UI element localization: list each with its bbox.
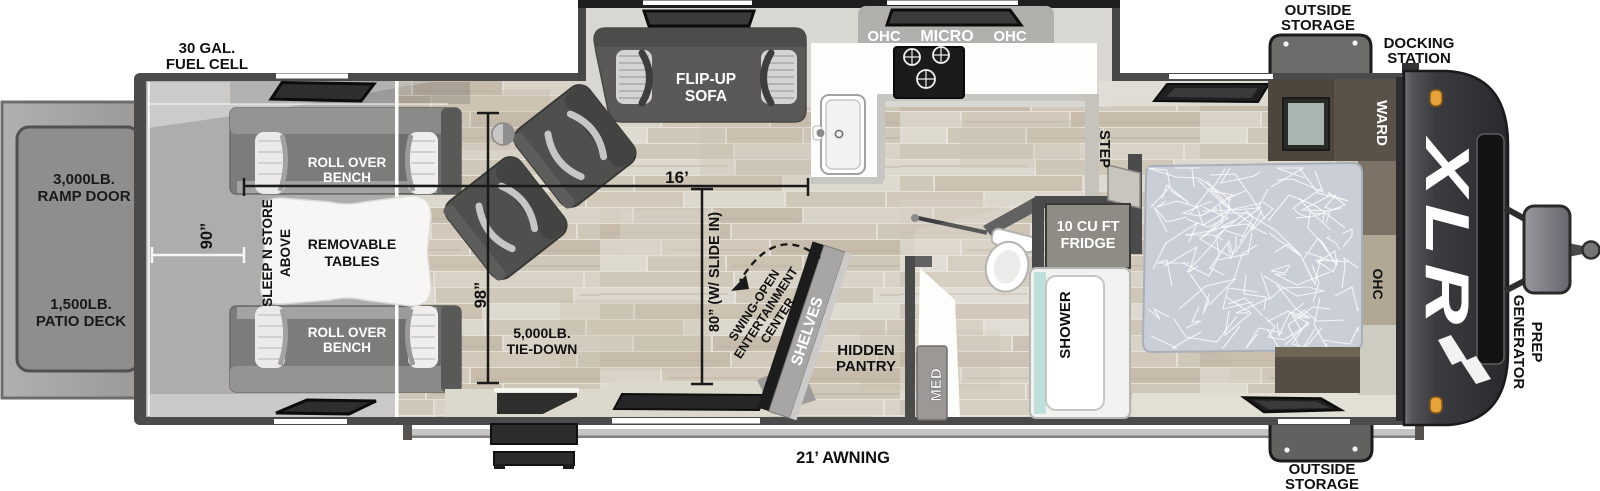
svg-text:STATION: STATION [1387,50,1451,67]
svg-text:PATIO DECK: PATIO DECK [36,313,126,330]
svg-text:RAMP DOOR: RAMP DOOR [37,188,130,205]
svg-text:WARD: WARD [1373,100,1390,146]
svg-text:FUEL CELL: FUEL CELL [166,56,248,73]
svg-text:GENERATOR: GENERATOR [1510,295,1527,390]
svg-text:5,000LB.: 5,000LB. [513,325,571,341]
svg-text:HIDDEN: HIDDEN [837,342,895,359]
svg-text:90”: 90” [198,223,216,250]
svg-text:OHC: OHC [867,28,901,45]
svg-text:SOFA: SOFA [685,88,727,105]
svg-text:BENCH: BENCH [323,170,371,185]
svg-text:BENCH: BENCH [323,340,371,355]
svg-text:FLIP-UP: FLIP-UP [676,71,736,88]
svg-text:TIE-DOWN: TIE-DOWN [507,341,578,357]
svg-text:STORAGE: STORAGE [1281,17,1355,34]
svg-text:98”: 98” [472,282,490,309]
svg-text:3,000LB.: 3,000LB. [53,171,115,188]
svg-text:PANTRY: PANTRY [836,358,896,375]
svg-text:REMOVABLE: REMOVABLE [308,236,396,252]
svg-text:FRIDGE: FRIDGE [1061,236,1116,252]
svg-text:MICRO: MICRO [920,28,973,45]
svg-text:XLR: XLR [1413,135,1483,333]
svg-text:SHOWER: SHOWER [1057,291,1074,359]
svg-text:16’: 16’ [665,168,689,187]
svg-text:21’ AWNING: 21’ AWNING [796,449,890,467]
svg-text:OHC: OHC [1370,268,1386,299]
svg-text:SLEEP N STORE: SLEEP N STORE [260,199,275,307]
svg-text:PREP: PREP [1528,322,1545,363]
svg-text:30 GAL.: 30 GAL. [179,40,236,57]
svg-text:TABLES: TABLES [325,253,380,269]
svg-text:80” (W/ SLIDE IN): 80” (W/ SLIDE IN) [707,212,723,332]
svg-text:ROLL OVER: ROLL OVER [308,325,387,340]
svg-text:MED: MED [928,368,945,402]
svg-text:STORAGE: STORAGE [1285,476,1359,491]
svg-text:ROLL OVER: ROLL OVER [308,155,387,170]
svg-text:OHC: OHC [993,28,1027,45]
svg-text:STEP: STEP [1096,130,1112,168]
svg-text:1,500LB.: 1,500LB. [50,296,112,313]
svg-text:10 CU FT: 10 CU FT [1057,219,1120,235]
svg-text:ABOVE: ABOVE [278,229,293,277]
